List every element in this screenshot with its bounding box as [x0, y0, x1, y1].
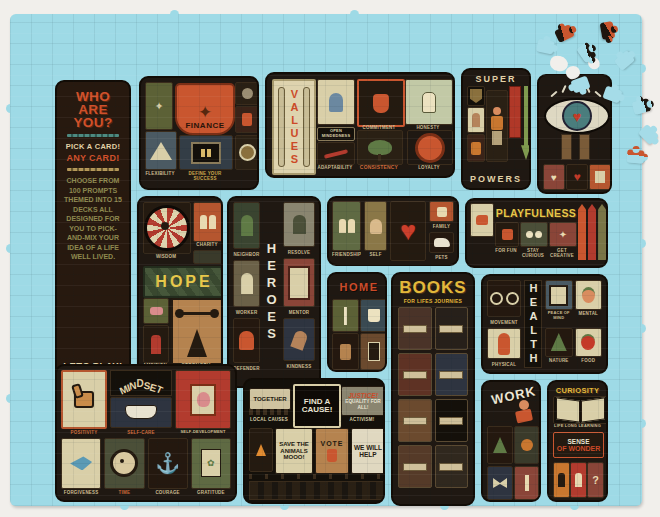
nature-cell: NATURE — [545, 328, 573, 369]
figure-icon — [151, 335, 161, 354]
book-card — [435, 399, 469, 442]
forgiveness-card — [61, 438, 101, 489]
medal-icon — [521, 439, 533, 451]
eyelash-icon — [561, 85, 566, 93]
home-title: HOME — [340, 281, 379, 293]
peace-of-mind-card — [545, 280, 573, 310]
open-mindedness-sign: OPEN MINDEDNESS — [317, 127, 355, 141]
lifelong-learning-label: LIFE LONG LEARNING — [551, 424, 604, 429]
figure-icon — [290, 329, 308, 350]
for-fun-label: FOR FUN — [495, 248, 517, 253]
superpowers-title-top: SUPER — [475, 74, 516, 84]
crayon-icon — [588, 204, 596, 260]
movement-label: MOVEMENT — [487, 319, 521, 326]
vote-sign: VOTE — [315, 428, 349, 474]
figures-icon — [200, 215, 216, 229]
worker-body-icon — [515, 408, 533, 423]
food-cell: FOOD — [575, 328, 603, 369]
friendship-cell: FRIENDSHIP — [332, 201, 361, 261]
house-icon — [191, 142, 221, 164]
down-arrow-icon — [521, 86, 531, 160]
wheel-icon — [144, 205, 190, 251]
brain-book-icon — [190, 384, 216, 416]
crowd-strip — [249, 481, 385, 500]
figures-icon — [339, 219, 355, 233]
mentor-card — [283, 258, 315, 307]
deck-panel-values: VALUES COMMITMENT HONESTY OPEN MINDEDNES… — [265, 72, 455, 178]
tree-icon — [368, 140, 392, 155]
card — [589, 164, 611, 190]
heroes-title: HEROES — [263, 202, 280, 382]
book-card — [435, 353, 469, 396]
forgiveness-cell: FORGIVENESS — [61, 438, 101, 496]
window-icon — [549, 285, 568, 306]
health-grid: PEACE OF MIND MENTAL NATURE FOOD — [545, 280, 602, 368]
shield-card — [467, 86, 485, 106]
curiosity-title: CURIOSITY — [551, 386, 604, 395]
mug-icon — [368, 309, 380, 322]
book-label-plate — [403, 325, 427, 333]
deck-panel-health: MOVEMENT PHYSICAL HEALTH PEACE OF MIND M… — [481, 274, 608, 374]
self-card — [364, 201, 387, 251]
defender-label: DEFENDER — [233, 365, 260, 372]
puzzle-edge-knob — [6, 104, 15, 113]
plant-card — [487, 426, 513, 464]
badge-card — [514, 426, 539, 464]
iris: ♥ — [562, 101, 592, 131]
loyalty-label: LOYALTY — [407, 165, 451, 170]
positivity-label: POSITIVITY — [61, 429, 107, 436]
peace-hand-icon — [327, 449, 337, 462]
love-heart-card: ♥ — [390, 201, 426, 261]
consistency-card — [357, 130, 403, 165]
finance-card — [235, 106, 259, 133]
divider — [67, 168, 119, 171]
tool-icon — [525, 475, 529, 491]
ear-card — [467, 107, 485, 133]
friendship-card — [332, 201, 361, 251]
family-pets-cell: FAMILY PETS — [429, 201, 454, 261]
rollerskate-card — [470, 203, 494, 237]
values-title-card: VALUES — [272, 79, 316, 175]
superpowers-title-bottom: POWERS — [470, 174, 522, 184]
hope-title: HOPE — [143, 266, 223, 298]
goggles-card — [520, 222, 548, 247]
activism-label: ACTIVISM! — [341, 417, 383, 422]
commitment-card — [357, 79, 405, 127]
finance-card: ✦ — [145, 82, 173, 130]
positivity-cell: POSITIVITY — [61, 370, 107, 436]
tree-icon: ✦ — [198, 104, 212, 121]
loose-puzzle-piece — [626, 149, 644, 163]
figure-icon — [242, 113, 252, 126]
playfulness-title: PLAYFULNESS — [495, 207, 577, 219]
physical-label: PHYSICAL — [487, 361, 521, 368]
anatomy-icon — [498, 333, 510, 355]
crowd-icon — [249, 409, 289, 415]
deck-panel-playfulness: PLAYFULNESS FOR FUN STAY CURIOUS ✦ GET C… — [465, 198, 608, 268]
pets-label: PETS — [429, 254, 454, 261]
heart-icon: ♥ — [551, 172, 557, 183]
deck-panel-curiosity: CURIOSITY LIFE LONG LEARNING SENSE OF WO… — [547, 380, 608, 502]
coin-icon — [242, 88, 253, 99]
family-label: FAMILY — [429, 223, 454, 230]
consistency-label: CONSISTENCY — [357, 165, 401, 171]
friendship-label: FRIENDSHIP — [332, 251, 361, 258]
mug-card — [360, 299, 387, 332]
books-subtitle: FOR LIFES JOURNIES — [398, 298, 468, 304]
mindset-title-tile: MINDSET — [110, 370, 172, 396]
card — [143, 298, 169, 324]
eye-heart-icon: ♥ — [544, 98, 610, 134]
heart-icon: ♥ — [573, 109, 582, 124]
open-mindedness-label: OPEN MINDEDNESS — [318, 129, 354, 138]
mental-card — [575, 280, 603, 310]
charity-card — [193, 202, 223, 242]
clock-icon — [110, 449, 138, 477]
pocket-knife-icon — [324, 149, 348, 159]
adaptability-label: ADAPTABILITY — [317, 165, 353, 170]
open-book-icon — [556, 397, 580, 422]
book-card — [398, 353, 432, 396]
torch-card — [249, 428, 273, 472]
save-animals-text: SAVE THE ANIMALS MOOO! — [276, 440, 312, 462]
book-card — [435, 307, 469, 350]
loose-puzzle-piece — [632, 98, 652, 115]
open-mind-head-card — [317, 79, 355, 125]
open-book-card — [553, 396, 608, 424]
deck-panel-finance: ✦ ✦ FINANCE FLEXIBILITY DEFINE YOUR SUCC… — [139, 76, 259, 190]
stay-curious-label: STAY CURIOUS — [520, 248, 546, 258]
get-creative-label: GET CREATIVE — [549, 248, 575, 258]
success-card — [179, 135, 233, 170]
puzzle-edge-knob — [120, 501, 129, 510]
portrait-icon — [370, 219, 382, 234]
deck-panel-mindset: POSITIVITY MINDSET SELF-CARE SELF-DEVELO… — [55, 364, 237, 502]
mop-icon — [344, 307, 347, 325]
pillar — [561, 134, 572, 160]
mentor-label: MENTOR — [283, 309, 315, 316]
fist-icon — [373, 94, 389, 113]
forgiveness-label: FORGIVENESS — [61, 489, 101, 496]
thanks-card-icon: ✿ — [201, 449, 221, 477]
puzzle-edge-knob — [637, 324, 646, 333]
peace-of-mind-label: PEACE OF MIND — [545, 310, 573, 321]
find-a-cause-text: FIND A CAUSE! — [295, 397, 339, 416]
book-card — [435, 445, 469, 488]
deck-panel-hope: WISDOM CHARITY HOPE AMBITION STRENGTH — [137, 196, 223, 388]
pets-card — [429, 232, 454, 253]
together-sign: TOGETHER — [249, 388, 291, 410]
finance-purse-icon: ✦ FINANCE — [175, 83, 235, 135]
health-title: HEALTH — [528, 282, 539, 366]
worker-label: WORKER — [233, 309, 260, 316]
flexibility-card — [145, 131, 177, 170]
superpowers-art — [467, 86, 525, 172]
wisdom-card — [143, 202, 191, 254]
defender-card — [233, 318, 260, 363]
figure-icon — [575, 473, 582, 487]
moth-icon — [493, 478, 507, 488]
book-label-plate — [439, 325, 463, 333]
book-card — [398, 399, 432, 442]
mindset-row-1: POSITIVITY MINDSET SELF-CARE SELF-DEVELO… — [61, 370, 231, 436]
figure-icon — [293, 215, 306, 234]
courage-cell: ⚓ COURAGE — [148, 438, 188, 496]
divider — [67, 134, 119, 137]
neighbor-card — [233, 202, 260, 249]
eyelash-icon — [594, 91, 601, 98]
card — [193, 250, 223, 264]
loose-puzzle-piece — [600, 21, 616, 40]
worker-figure-icon — [241, 273, 253, 294]
loyalty-badge-icon — [415, 133, 445, 163]
we-will-help-sign: WE WILL HELP — [351, 428, 385, 474]
mental-label: MENTAL — [575, 310, 603, 317]
find-a-cause-sign: FIND A CAUSE! — [293, 384, 341, 428]
coin-card — [235, 82, 259, 105]
resolve-label: RESOLVE — [283, 249, 315, 256]
thumbs-up-icon — [74, 391, 94, 408]
plant-icon — [493, 437, 507, 453]
lock-icon — [340, 344, 351, 360]
finance-title: FINANCE — [185, 121, 224, 133]
success-label: DEFINE YOUR SUCCESS — [177, 171, 233, 181]
self-care-card — [110, 397, 172, 428]
strong-figure-icon — [239, 331, 254, 350]
figure-icon — [558, 473, 565, 487]
deck-panel-activism: TOGETHER LOCAL CAUSES FIND A CAUSE! JUST… — [243, 378, 385, 504]
nature-card — [545, 328, 573, 357]
self-development-card — [175, 370, 231, 429]
gratitude-card: ✿ — [191, 438, 231, 489]
book-label-plate — [403, 371, 427, 379]
time-card — [104, 438, 144, 489]
time-label: TIME — [104, 489, 144, 496]
robot-card — [495, 222, 519, 247]
book-label-plate — [439, 463, 463, 471]
dog-icon — [434, 238, 450, 247]
resolve-card — [283, 202, 315, 247]
deck-panel-heroes: NEIGHBOR WORKER DEFENDER HEROES RESOLVE … — [227, 196, 321, 388]
mindset-title: MINDSET — [117, 378, 166, 389]
neighbor-label: NEIGHBOR — [233, 251, 260, 258]
family-card — [429, 201, 454, 222]
work-title: WORK — [490, 383, 537, 407]
heroes-right-column: RESOLVE MENTOR KINDNESS — [283, 202, 315, 382]
heart-arrows-icon: ♥ — [400, 218, 416, 245]
radio-icon — [368, 342, 380, 361]
goggles-icon — [526, 231, 533, 238]
we-will-help-text: WE WILL HELP — [352, 443, 384, 460]
wisdom-label: WISDOM — [143, 254, 189, 259]
torch-flame-icon — [256, 444, 266, 456]
card — [553, 462, 570, 498]
deck-panel-books: BOOKS FOR LIFES JOURNIES — [391, 272, 475, 506]
puzzle-edge-knob — [350, 10, 359, 19]
justice-text: JUSTICE! — [348, 392, 378, 399]
moth-card — [487, 466, 513, 500]
adaptability-card — [317, 142, 355, 165]
puzzle-edge-knob — [637, 239, 646, 248]
loyalty-card — [407, 130, 453, 165]
intro-body-text: CHOOSE FROM 100 PROMPTS THEMED INTO 15 D… — [63, 176, 123, 355]
badge-card — [235, 135, 259, 170]
local-causes-label: LOCAL CAUSES — [247, 417, 291, 422]
health-title-strip: HEALTH — [524, 280, 542, 368]
thermometer-icon — [278, 87, 285, 167]
book-card — [398, 307, 432, 350]
values-title: VALUES — [289, 88, 300, 166]
pig-icon — [150, 307, 163, 315]
deck-panel-work: WORK — [481, 380, 541, 502]
anchor-icon: ⚓ — [155, 453, 180, 473]
ambition-card — [143, 325, 169, 363]
question-card: ? — [587, 462, 604, 498]
crayon-icon — [598, 204, 606, 260]
open-book-icon — [581, 397, 605, 422]
charity-label: CHARITY — [193, 242, 221, 247]
deck-panel-superpowers: SUPER POWERS — [461, 68, 531, 190]
bicycle-icon — [490, 292, 519, 305]
of-wonder-text: OF WONDER — [557, 445, 601, 452]
rollerskate-icon — [476, 215, 488, 225]
intro-panel: WHO ARE YOU? PICK A CARD! ANY CARD! CHOO… — [55, 80, 131, 390]
food-card — [575, 328, 603, 357]
peace-cell: PEACE OF MIND — [545, 280, 573, 326]
movement-card — [487, 280, 521, 317]
apple-icon — [581, 334, 595, 350]
self-development-label: SELF-DEVELOPMENT — [175, 429, 231, 436]
figure-icon: ✦ — [154, 101, 163, 112]
mountain-icon — [150, 142, 172, 160]
heart-card: ♥ — [566, 164, 588, 190]
medal-icon — [239, 144, 256, 161]
head-icon — [329, 93, 343, 112]
self-development-cell: SELF-DEVELOPMENT — [175, 370, 231, 436]
equality-text: EQUALITY FOR ALL! — [342, 399, 384, 410]
kindness-card — [283, 318, 315, 361]
hooded-figure-icon — [241, 215, 253, 236]
red-banner — [509, 86, 521, 138]
time-cell: TIME — [104, 438, 144, 496]
lock-card — [332, 333, 359, 370]
hero-figure-card — [486, 90, 508, 162]
hero-figure-icon — [491, 107, 503, 145]
physical-card — [487, 328, 521, 359]
family-icon — [437, 207, 447, 217]
intro-pick-line: PICK A CARD! — [66, 142, 121, 151]
radio-card — [360, 333, 387, 370]
puzzle-edge-knob — [170, 10, 179, 19]
mindset-center-cell: MINDSET SELF-CARE — [110, 370, 172, 436]
worker-card — [233, 260, 260, 307]
question-mark-icon: ? — [592, 474, 599, 486]
save-animals-sign: SAVE THE ANIMALS MOOO! — [275, 428, 313, 474]
heart-card: ♥ — [543, 164, 565, 190]
kindness-label: KINDNESS — [283, 363, 315, 370]
courage-label: COURAGE — [148, 489, 188, 496]
gratitude-label: GRATITUDE — [191, 489, 231, 496]
crayon-icon — [578, 204, 586, 260]
book-label-plate — [439, 417, 463, 425]
health-left-column: MOVEMENT PHYSICAL — [487, 280, 521, 368]
puzzle-edge-knob — [6, 244, 15, 253]
head-plants-icon — [582, 287, 595, 303]
nature-label: NATURE — [545, 357, 573, 364]
mop-card — [332, 299, 359, 332]
spark-icon: ✦ — [559, 230, 567, 240]
self-care-label: SELF-CARE — [110, 429, 172, 436]
ear-icon — [472, 113, 480, 127]
flexibility-label: FLEXIBILITY — [143, 171, 177, 176]
card — [570, 462, 587, 498]
self-cell: SELF — [364, 201, 387, 261]
creative-card: ✦ — [549, 222, 577, 247]
mental-cell: MENTAL — [575, 280, 603, 326]
vote-text: VOTE — [320, 440, 343, 447]
book-card — [398, 445, 432, 488]
honesty-card — [405, 79, 453, 125]
dove-icon — [70, 456, 92, 470]
mindset-row-2: FORGIVENESS TIME ⚓ COURAGE ✿ GRATITUDE — [61, 438, 231, 496]
puzzle-edge-knob — [637, 419, 646, 428]
sign-sticks — [249, 474, 383, 479]
weightlifter-icon — [187, 329, 207, 357]
robot-icon — [502, 229, 513, 240]
bathtub-icon — [125, 405, 157, 419]
hand-icon — [422, 92, 436, 113]
intro-any-line: ANY CARD! — [66, 153, 119, 163]
puzzle-edge-knob — [570, 501, 579, 510]
puzzle-mat: WHO ARE YOU? PICK A CARD! ANY CARD! CHOO… — [10, 14, 642, 506]
shield-icon — [470, 89, 482, 103]
eyelash-icon — [550, 91, 557, 98]
together-text: TOGETHER — [253, 396, 286, 402]
book-label-plate — [403, 417, 427, 425]
crayons-icon — [578, 204, 608, 262]
photo-icon — [595, 171, 605, 183]
pillar — [579, 134, 590, 160]
courage-card: ⚓ — [148, 438, 188, 489]
books-title: BOOKS — [398, 279, 468, 296]
gratitude-cell: ✿ GRATITUDE — [191, 438, 231, 496]
heart-icon: ♥ — [573, 170, 580, 184]
figure-card — [467, 134, 485, 162]
deck-panel-home: HOME — [327, 272, 387, 372]
pine-tree-icon — [551, 333, 567, 351]
book-label-plate — [403, 463, 427, 471]
book-cards-grid — [398, 307, 468, 488]
food-label: FOOD — [575, 357, 603, 364]
barbell-icon — [178, 312, 216, 315]
home-title-block: HOME — [332, 277, 386, 297]
book-label-plate — [439, 371, 463, 379]
sense-of-wonder-box: SENSE OF WONDER — [553, 432, 604, 458]
sense-text: SENSE — [567, 438, 589, 445]
intro-title: WHO ARE YOU? — [63, 91, 123, 129]
puzzle-edge-knob — [637, 64, 646, 73]
tool-card — [514, 466, 539, 500]
heroes-left-column: NEIGHBOR WORKER DEFENDER — [233, 202, 260, 382]
self-label: SELF — [364, 251, 387, 258]
positivity-card — [61, 370, 107, 429]
thermometer-icon — [303, 87, 310, 167]
puzzle-product-photo: WHO ARE YOU? PICK A CARD! ANY CARD! CHOO… — [0, 0, 660, 517]
strength-card — [171, 298, 223, 365]
figure-icon — [471, 142, 481, 155]
deck-panel-love: FRIENDSHIP SELF ♥ FAMILY PETS — [327, 196, 459, 266]
